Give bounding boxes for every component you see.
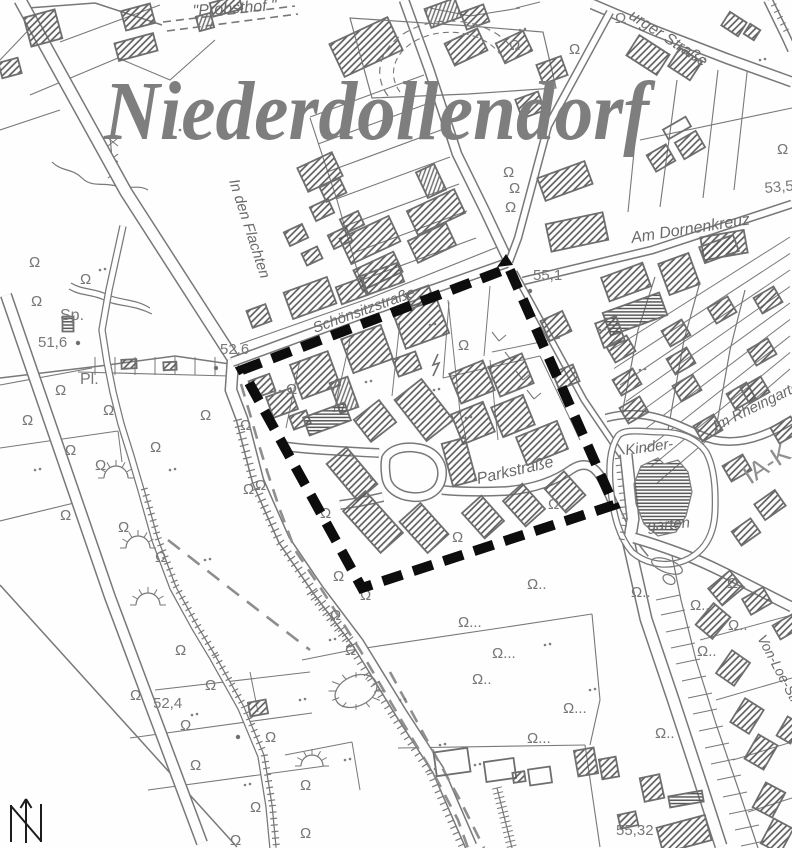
- svg-text:Ω..: Ω..: [655, 725, 675, 742]
- svg-text:Ω: Ω: [345, 642, 356, 659]
- svg-text:55,1: 55,1: [533, 267, 562, 284]
- svg-text:Ω: Ω: [205, 677, 216, 694]
- svg-text:Ω: Ω: [265, 729, 276, 746]
- svg-text:Ω: Ω: [548, 496, 559, 513]
- svg-text:Ω: Ω: [200, 407, 211, 424]
- svg-text:Ω: Ω: [330, 607, 341, 624]
- svg-text:Ω: Ω: [250, 799, 261, 816]
- svg-text:Ω..: Ω..: [472, 671, 492, 688]
- svg-text:52,4: 52,4: [153, 695, 182, 712]
- svg-text:Ω: Ω: [458, 337, 469, 354]
- svg-text:Ω: Ω: [243, 481, 254, 498]
- svg-text:Ω: Ω: [190, 757, 201, 774]
- svg-text:Ω: Ω: [130, 687, 141, 704]
- svg-text:Ω..: Ω..: [527, 576, 547, 593]
- svg-text:Ω: Ω: [505, 199, 516, 216]
- svg-text:Pl.: Pl.: [80, 371, 99, 388]
- svg-text:Ω...: Ω...: [690, 597, 714, 614]
- svg-text:Ω...: Ω...: [563, 700, 587, 717]
- svg-text:Ω: Ω: [300, 825, 311, 842]
- svg-text:Ω..: Ω..: [728, 617, 748, 634]
- svg-text:Ω: Ω: [255, 477, 266, 494]
- svg-text:Ω: Ω: [175, 642, 186, 659]
- svg-text:51,6: 51,6: [38, 334, 67, 351]
- svg-text:Ω: Ω: [777, 141, 788, 158]
- svg-text:Ω: Ω: [615, 10, 626, 27]
- svg-text:Ω: Ω: [240, 417, 251, 434]
- svg-text:53,5: 53,5: [764, 178, 792, 197]
- svg-text:Ω: Ω: [31, 293, 42, 310]
- svg-text:Ω: Ω: [103, 402, 114, 419]
- svg-text:Sp.: Sp.: [60, 307, 84, 324]
- svg-text:Ω..: Ω..: [631, 584, 651, 601]
- svg-text:Ω: Ω: [333, 568, 344, 585]
- svg-text:Ω..: Ω..: [697, 643, 717, 660]
- svg-text:Ω: Ω: [22, 412, 33, 429]
- svg-text:Ω: Ω: [150, 439, 161, 456]
- svg-text:52,6: 52,6: [220, 341, 249, 358]
- svg-text:Ω: Ω: [95, 457, 106, 474]
- svg-text:Ω: Ω: [29, 254, 40, 271]
- svg-text:Ω: Ω: [155, 549, 166, 566]
- svg-text:Ω: Ω: [509, 37, 520, 54]
- svg-text:Ω: Ω: [503, 164, 514, 181]
- svg-text:Ω..: Ω..: [727, 575, 747, 592]
- svg-text:Ω: Ω: [300, 777, 311, 794]
- svg-text:Ω: Ω: [230, 832, 241, 848]
- svg-text:55,32: 55,32: [616, 822, 654, 839]
- svg-text:Ω: Ω: [55, 382, 66, 399]
- svg-text:Ω...: Ω...: [458, 614, 482, 631]
- svg-text:Ω: Ω: [65, 442, 76, 459]
- svg-text:Ω...: Ω...: [527, 730, 551, 747]
- svg-text:Ω: Ω: [80, 271, 91, 288]
- svg-text:Ω...: Ω...: [492, 645, 516, 662]
- svg-text:Ω: Ω: [452, 529, 463, 546]
- svg-text:Ω: Ω: [180, 717, 191, 734]
- svg-text:Ω: Ω: [569, 41, 580, 58]
- svg-text:Niederdollendorf: Niederdollendorf: [103, 65, 655, 158]
- svg-text:Ω: Ω: [118, 519, 129, 536]
- svg-text:Ω: Ω: [509, 180, 520, 197]
- svg-text:Ω: Ω: [286, 381, 297, 398]
- svg-text:Ω: Ω: [60, 507, 71, 524]
